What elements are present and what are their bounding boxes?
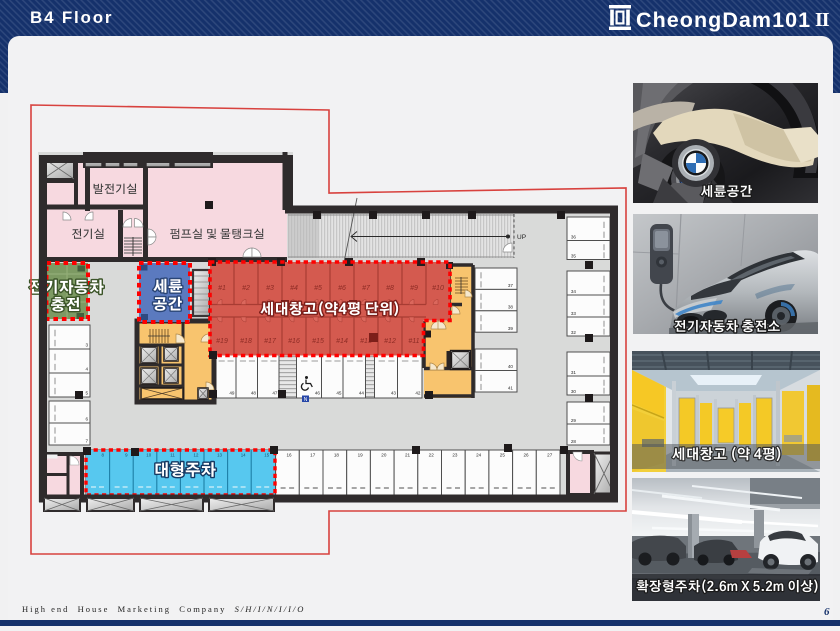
svg-text:47: 47 [272, 391, 278, 396]
svg-text:#18: #18 [240, 338, 252, 345]
svg-text:36: 36 [571, 235, 577, 240]
svg-text:29: 29 [571, 418, 577, 423]
svg-text:#11: #11 [408, 338, 419, 345]
svg-text:32: 32 [571, 330, 577, 335]
svg-text:#14: #14 [336, 338, 348, 345]
svg-text:#15: #15 [312, 338, 324, 345]
svg-text:#3: #3 [266, 285, 274, 292]
svg-text:39: 39 [508, 326, 514, 331]
svg-text:42: 42 [415, 391, 421, 396]
svg-text:3: 3 [85, 343, 88, 348]
svg-text:#16: #16 [288, 338, 300, 345]
svg-text:49: 49 [229, 391, 235, 396]
svg-text:27: 27 [547, 453, 553, 458]
svg-text:23: 23 [452, 453, 458, 458]
svg-text:#19: #19 [216, 338, 228, 345]
svg-text:#7: #7 [362, 285, 371, 292]
svg-text:22: 22 [429, 453, 435, 458]
svg-text:#9: #9 [410, 285, 418, 292]
svg-text:17: 17 [310, 453, 316, 458]
svg-text:#5: #5 [314, 285, 322, 292]
svg-text:41: 41 [508, 386, 514, 391]
svg-text:#10: #10 [432, 285, 444, 292]
svg-text:#2: #2 [242, 285, 250, 292]
svg-text:7: 7 [85, 439, 88, 444]
svg-text:4: 4 [85, 367, 88, 372]
svg-text:UP: UP [517, 234, 526, 241]
svg-text:37: 37 [508, 283, 514, 288]
svg-text:38: 38 [508, 304, 514, 309]
svg-text:40: 40 [508, 364, 514, 369]
svg-text:33: 33 [571, 311, 577, 316]
svg-text:26: 26 [523, 453, 529, 458]
svg-text:#17: #17 [264, 338, 277, 345]
svg-text:35: 35 [571, 254, 577, 259]
svg-text:45: 45 [336, 391, 342, 396]
svg-text:24: 24 [476, 453, 482, 458]
svg-text:18: 18 [334, 453, 340, 458]
svg-text:#8: #8 [386, 285, 394, 292]
svg-text:25: 25 [500, 453, 506, 458]
svg-text:48: 48 [251, 391, 257, 396]
svg-text:20: 20 [381, 453, 387, 458]
svg-text:5: 5 [85, 391, 88, 396]
svg-text:6: 6 [85, 417, 88, 422]
svg-text:#1: #1 [218, 285, 226, 292]
svg-text:28: 28 [571, 439, 577, 444]
svg-text:10: 10 [146, 453, 151, 458]
svg-text:#12: #12 [384, 338, 396, 345]
svg-text:46: 46 [315, 391, 321, 396]
svg-text:12: 12 [194, 453, 199, 458]
svg-text:19: 19 [358, 453, 364, 458]
svg-text:14: 14 [241, 453, 246, 458]
svg-text:#4: #4 [290, 285, 298, 292]
svg-text:34: 34 [571, 289, 577, 294]
svg-text:N: N [304, 397, 308, 403]
svg-text:11: 11 [170, 453, 175, 458]
svg-text:31: 31 [571, 370, 577, 375]
svg-text:21: 21 [405, 453, 411, 458]
svg-text:13: 13 [217, 453, 222, 458]
svg-text:44: 44 [359, 391, 365, 396]
svg-text:#6: #6 [338, 285, 346, 292]
svg-text:43: 43 [391, 391, 397, 396]
svg-text:30: 30 [571, 389, 577, 394]
svg-text:15: 15 [264, 453, 269, 458]
svg-text:16: 16 [286, 453, 292, 458]
